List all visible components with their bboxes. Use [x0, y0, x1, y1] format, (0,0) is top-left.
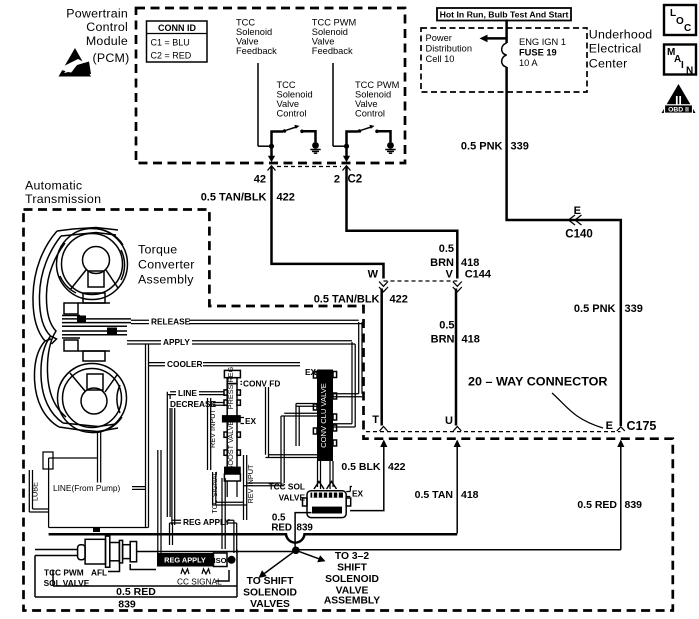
svg-text:Valve: Valve — [277, 99, 300, 109]
svg-text:C: C — [684, 23, 691, 34]
svg-text:Powertrain: Powertrain — [66, 7, 128, 21]
svg-text:W: W — [368, 269, 379, 281]
svg-text:422: 422 — [277, 192, 295, 204]
svg-text:C144: C144 — [465, 269, 492, 281]
svg-text:C1 = BLU: C1 = BLU — [151, 38, 190, 48]
svg-text:CONN ID: CONN ID — [158, 23, 197, 33]
svg-text:339: 339 — [625, 303, 643, 315]
svg-text:EX: EX — [245, 416, 257, 426]
svg-text:418: 418 — [461, 489, 479, 501]
svg-text:0.5 RED: 0.5 RED — [577, 499, 617, 511]
svg-text:TO SHIFT: TO SHIFT — [247, 576, 294, 587]
svg-text:SOLENOID: SOLENOID — [243, 588, 297, 599]
svg-text:Valve: Valve — [355, 99, 378, 109]
svg-text:REG APPLY: REG APPLY — [164, 556, 206, 565]
svg-text:Transmission: Transmission — [25, 192, 101, 206]
svg-text:Valve: Valve — [312, 37, 335, 47]
svg-text:BRN: BRN — [430, 257, 454, 269]
svg-text:Feedback: Feedback — [312, 46, 353, 56]
svg-text:TCC PWM: TCC PWM — [44, 568, 84, 578]
svg-text:Valve: Valve — [236, 37, 259, 47]
svg-text:LINE: LINE — [178, 388, 197, 398]
svg-text:C140: C140 — [565, 229, 593, 241]
svg-text:0.5 BLK: 0.5 BLK — [341, 461, 381, 473]
svg-text:Electrical: Electrical — [589, 42, 642, 56]
svg-text:APPLY: APPLY — [163, 337, 190, 347]
svg-text:REG APPLY: REG APPLY — [183, 517, 230, 527]
svg-text:TCC PWM: TCC PWM — [312, 18, 356, 28]
svg-text:LUBE: LUBE — [31, 482, 40, 501]
svg-text:339: 339 — [511, 141, 529, 153]
svg-text:VALVE: VALVE — [279, 493, 306, 503]
svg-text:C2: C2 — [348, 174, 363, 186]
svg-text:422: 422 — [388, 461, 406, 473]
svg-text:2: 2 — [334, 174, 340, 186]
svg-text:CONV CLU VALVE: CONV CLU VALVE — [319, 383, 328, 448]
svg-text:COOLER: COOLER — [167, 359, 203, 369]
svg-text:VALVES: VALVES — [250, 599, 290, 610]
svg-text:0.5 PNK: 0.5 PNK — [574, 303, 616, 315]
svg-text:N: N — [686, 66, 693, 77]
svg-text:0.5 PNK: 0.5 PNK — [461, 141, 503, 153]
svg-text:C175: C175 — [627, 419, 657, 433]
svg-text:CONV FD: CONV FD — [243, 379, 280, 389]
svg-text:0.5 TAN/BLK: 0.5 TAN/BLK — [201, 192, 267, 204]
svg-text:ISO: ISO — [213, 556, 226, 565]
svg-text:BOOST VALVE: BOOST VALVE — [226, 420, 235, 470]
svg-text:0.5: 0.5 — [439, 243, 454, 255]
svg-text:REV INPUT: REV INPUT — [208, 408, 217, 447]
svg-text:TCC: TCC — [277, 80, 296, 90]
svg-text:ASSEMBLY: ASSEMBLY — [324, 596, 380, 607]
svg-text:839: 839 — [625, 499, 643, 511]
svg-text:Hot In Run, Bulb Test And Star: Hot In Run, Bulb Test And Start — [440, 10, 569, 20]
svg-text:TCC PWM: TCC PWM — [355, 80, 399, 90]
svg-text:TCC SOL: TCC SOL — [269, 482, 305, 492]
svg-text:OBD II: OBD II — [668, 107, 689, 114]
svg-text:I: I — [681, 60, 684, 71]
svg-text:V: V — [445, 269, 453, 281]
svg-text:PRESS REG: PRESS REG — [226, 366, 235, 409]
svg-text:Automatic: Automatic — [25, 179, 82, 193]
svg-text:422: 422 — [390, 294, 408, 306]
svg-text:0.5: 0.5 — [439, 320, 454, 332]
svg-text:Torque: Torque — [138, 242, 177, 256]
svg-text:Underhood: Underhood — [589, 28, 653, 42]
svg-text:10 A: 10 A — [519, 58, 538, 68]
svg-text:SOLENOID: SOLENOID — [325, 574, 379, 585]
svg-text:CC SIGNAL: CC SIGNAL — [177, 577, 222, 587]
svg-text:Control: Control — [86, 20, 128, 34]
svg-text:RED: RED — [271, 523, 292, 534]
svg-text:Control: Control — [355, 109, 385, 119]
svg-text:EX: EX — [305, 367, 317, 377]
svg-text:0.5 TAN/BLK: 0.5 TAN/BLK — [314, 294, 380, 306]
svg-text:Module: Module — [86, 34, 128, 48]
svg-text:Center: Center — [589, 57, 628, 71]
svg-text:20 – WAY CONNECTOR: 20 – WAY CONNECTOR — [468, 375, 608, 389]
svg-text:Cell 10: Cell 10 — [426, 54, 455, 64]
svg-text:839: 839 — [297, 523, 314, 534]
svg-text:TO 3–2: TO 3–2 — [335, 551, 369, 562]
svg-text:SHIFT: SHIFT — [337, 563, 367, 574]
svg-text:LINE(From Pump): LINE(From Pump) — [53, 483, 121, 493]
svg-text:TCC: TCC — [236, 18, 255, 28]
svg-text:0.5 RED: 0.5 RED — [116, 586, 156, 598]
svg-text:U: U — [445, 415, 453, 427]
svg-text:E: E — [606, 420, 613, 432]
svg-text:ENG IGN 1: ENG IGN 1 — [519, 37, 566, 47]
svg-text:Power: Power — [426, 33, 452, 43]
svg-text:DECREASE: DECREASE — [170, 399, 217, 409]
svg-text:RELEASE: RELEASE — [151, 317, 191, 327]
svg-text:839: 839 — [118, 599, 136, 611]
svg-text:Distribution: Distribution — [426, 44, 473, 54]
svg-text:Solenoid: Solenoid — [277, 90, 313, 100]
svg-text:(PCM): (PCM) — [92, 51, 129, 65]
svg-text:Feedback: Feedback — [236, 46, 277, 56]
svg-text:O: O — [676, 16, 684, 27]
svg-text:EX: EX — [352, 489, 364, 499]
svg-text:42: 42 — [254, 174, 266, 186]
svg-text:Assembly: Assembly — [138, 272, 194, 286]
svg-text:Solenoid: Solenoid — [312, 27, 348, 37]
svg-text:0.5 TAN: 0.5 TAN — [415, 489, 453, 501]
svg-text:T: T — [372, 414, 379, 426]
svg-text:Solenoid: Solenoid — [236, 27, 272, 37]
svg-text:REV INPUT: REV INPUT — [246, 464, 255, 503]
svg-text:C2 = RED: C2 = RED — [151, 51, 192, 61]
svg-text:BRN: BRN — [431, 334, 455, 346]
svg-text:Converter: Converter — [138, 257, 195, 271]
svg-text:FUSE 19: FUSE 19 — [519, 48, 557, 58]
svg-text:AFL: AFL — [91, 568, 107, 578]
svg-text:418: 418 — [462, 334, 480, 346]
svg-text:Control: Control — [277, 109, 307, 119]
svg-text:Solenoid: Solenoid — [355, 90, 391, 100]
svg-text:418: 418 — [461, 257, 479, 269]
